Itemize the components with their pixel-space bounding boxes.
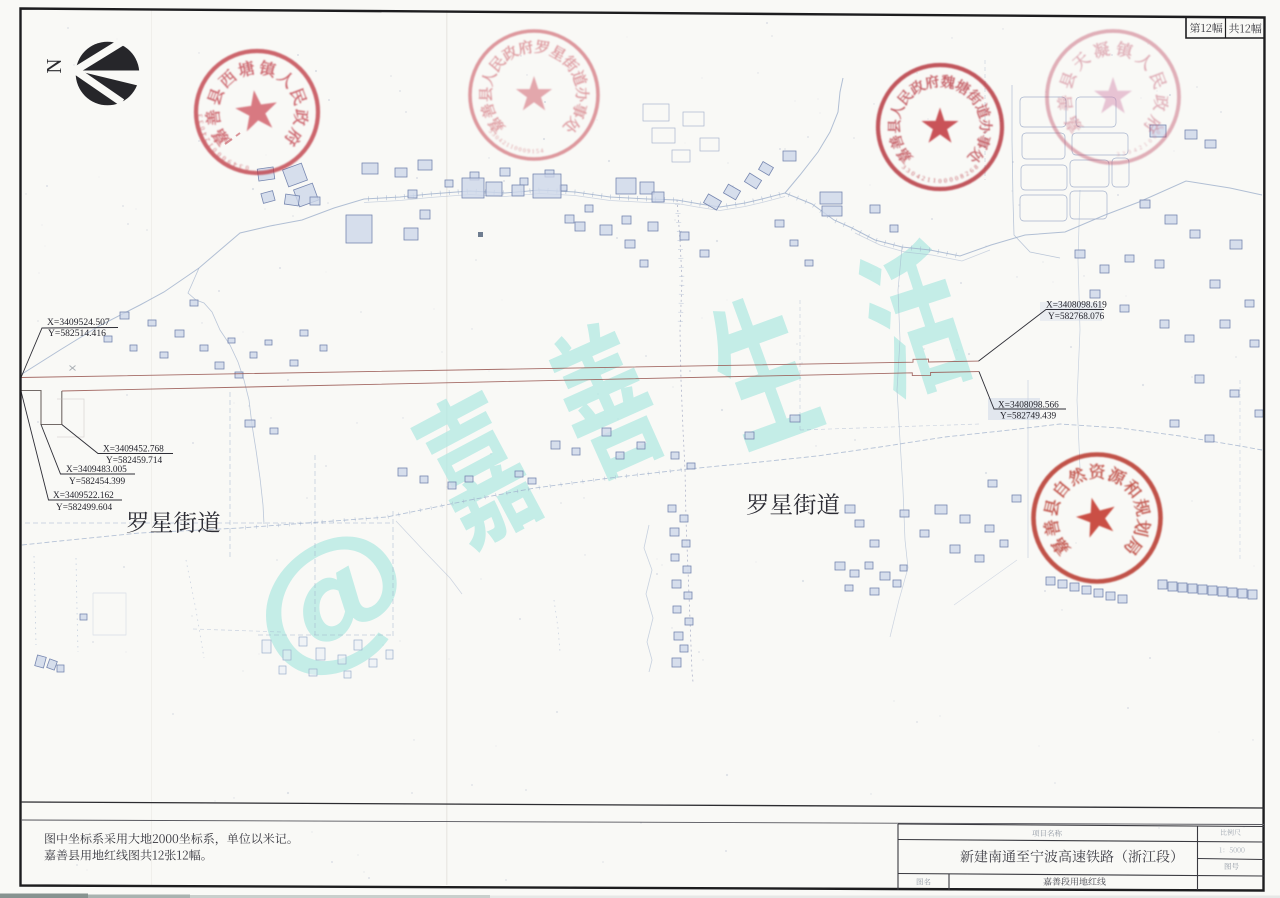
svg-text:X=3409524.507: X=3409524.507 xyxy=(47,317,110,328)
svg-text:3: 3 xyxy=(197,114,204,118)
svg-text:X=3409452.768: X=3409452.768 xyxy=(103,445,164,455)
svg-text:X=3408098.619: X=3408098.619 xyxy=(1046,301,1107,311)
svg-text:9: 9 xyxy=(527,149,531,155)
svg-text:0: 0 xyxy=(938,178,941,185)
svg-text:X=3409522.162: X=3409522.162 xyxy=(53,491,114,501)
svg-text:Y=582499.604: Y=582499.604 xyxy=(56,503,112,513)
svg-text:X=3408098.566: X=3408098.566 xyxy=(998,401,1059,411)
svg-text:Y=582454.399: Y=582454.399 xyxy=(69,477,125,487)
svg-text:1: 1 xyxy=(532,149,535,155)
svg-text:N: N xyxy=(42,58,66,73)
svg-text:Y=582749.439: Y=582749.439 xyxy=(1000,412,1056,422)
svg-text:5: 5 xyxy=(536,149,539,155)
svg-text:3: 3 xyxy=(1116,152,1120,158)
svg-text:Y=582768.076: Y=582768.076 xyxy=(1048,312,1104,322)
svg-text:X=3409483.005: X=3409483.005 xyxy=(66,465,127,475)
svg-text:Y=582514.416: Y=582514.416 xyxy=(48,328,106,339)
